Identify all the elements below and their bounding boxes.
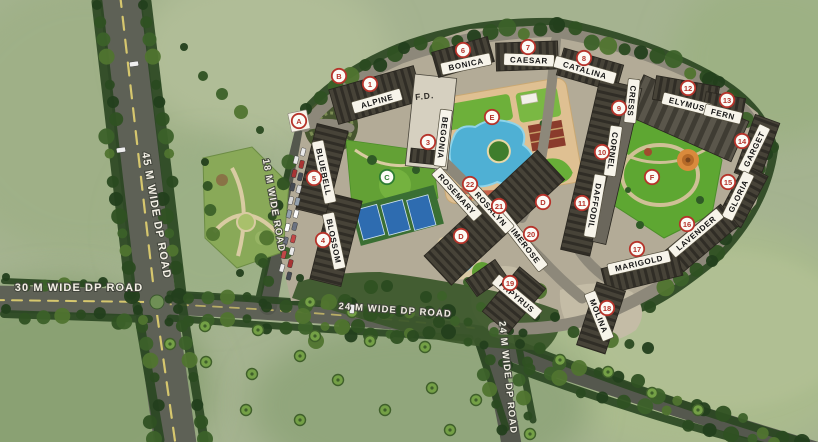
tree [143, 415, 157, 429]
tree [596, 392, 608, 404]
building-number-badge[interactable]: 8 [577, 51, 591, 65]
palm-tree [427, 383, 438, 394]
building-number: 9 [617, 104, 621, 113]
tree [107, 176, 119, 188]
building-number: 15 [724, 178, 732, 187]
tree [497, 425, 508, 436]
tree [491, 400, 500, 409]
tree [94, 16, 106, 28]
tree [19, 313, 31, 325]
tree [138, 0, 148, 10]
tree [757, 427, 769, 439]
palm-tree [200, 321, 211, 332]
tree [738, 413, 748, 423]
building-number-badge[interactable]: 22 [463, 177, 477, 191]
tree [263, 276, 274, 287]
tree [398, 42, 410, 54]
tree [153, 96, 165, 108]
tree [321, 322, 330, 331]
tree [204, 204, 216, 216]
tree [642, 342, 654, 354]
tree [682, 420, 694, 432]
tree [524, 412, 533, 421]
amenity-marker-e-5[interactable]: E [485, 110, 499, 124]
building-number: 10 [598, 148, 606, 157]
palm-tree [241, 405, 252, 416]
tree [220, 290, 235, 305]
tree [631, 374, 645, 388]
tree [54, 308, 70, 324]
tree [524, 363, 536, 375]
tree [314, 91, 328, 105]
tree [220, 312, 235, 327]
tree [202, 291, 215, 304]
tree [684, 67, 696, 79]
tree [206, 227, 220, 241]
tree [2, 273, 10, 281]
tree [180, 43, 188, 51]
tree [550, 312, 560, 322]
tree [619, 43, 631, 55]
building-number-badge[interactable]: 19 [503, 276, 517, 290]
palm-tree [365, 336, 376, 347]
tree [464, 318, 473, 327]
tree [637, 398, 653, 414]
building-number: 6 [461, 46, 465, 55]
tree [519, 329, 528, 338]
palm-tree [295, 415, 306, 426]
tree [182, 352, 198, 368]
tree [143, 32, 157, 46]
building-number: 11 [578, 199, 586, 208]
tree [571, 360, 587, 376]
building-number-badge[interactable]: 3 [421, 135, 435, 149]
amenity-marker-d-4[interactable]: D [536, 195, 550, 209]
amenity-marker-f-6[interactable]: F [645, 170, 659, 184]
tree [109, 112, 123, 126]
tree [533, 23, 547, 37]
amenity-marker-d-3[interactable]: D [454, 229, 468, 243]
palm-tree [693, 405, 704, 416]
tree [715, 406, 731, 422]
tree [105, 149, 115, 159]
building-number-badge[interactable]: 1 [363, 77, 377, 91]
building-number: 19 [506, 279, 514, 288]
building-number: 18 [603, 304, 611, 313]
tree [672, 396, 682, 406]
tree [158, 128, 174, 144]
palm-tree [310, 331, 321, 342]
tree [568, 21, 582, 35]
palm-tree [647, 388, 658, 399]
car-on-road [129, 61, 139, 67]
amenity-letter: E [489, 113, 494, 122]
palm-tree [420, 342, 431, 353]
tree [723, 426, 739, 442]
tree [576, 388, 586, 398]
tree [321, 294, 337, 310]
building-number-badge[interactable]: 11 [575, 196, 589, 210]
building-number-badge[interactable]: 6 [456, 43, 470, 57]
tree [37, 310, 51, 324]
tree [277, 177, 290, 190]
masterplan-svg: 45 M WIDE DP ROAD30 M WIDE DP ROAD18 M W… [0, 0, 818, 442]
tree [662, 406, 672, 416]
tree [99, 49, 115, 65]
amenity-letter: D [540, 198, 546, 207]
amenity-marker-c-2[interactable]: C [380, 170, 394, 184]
palm-tree [253, 325, 264, 336]
tree [236, 269, 244, 277]
amenity-letter: B [336, 72, 342, 81]
building-number-badge[interactable]: 9 [612, 101, 626, 115]
tree [234, 105, 248, 119]
tree [624, 339, 634, 349]
tree [150, 372, 160, 382]
tree [515, 339, 525, 349]
tree [96, 32, 110, 46]
palm-tree [471, 395, 482, 406]
tree [703, 423, 717, 437]
amenity-letter: C [384, 173, 390, 182]
tree [516, 391, 531, 406]
tree [243, 292, 252, 301]
amenity-letter: F [650, 173, 655, 182]
building-name: CAESAR [510, 55, 548, 65]
palm-tree [201, 357, 212, 368]
tree [296, 274, 304, 282]
road-label-road-30m: 30 M WIDE DP ROAD [15, 282, 144, 294]
tree [280, 300, 293, 313]
tree [216, 88, 228, 100]
tree [142, 353, 158, 369]
tree [259, 299, 268, 308]
tree [441, 324, 456, 339]
tree [534, 342, 546, 354]
building-number: 13 [723, 96, 731, 105]
tree [145, 49, 161, 65]
tree [464, 338, 473, 347]
building-number: 16 [683, 220, 691, 229]
building-number: 14 [738, 137, 747, 146]
tree [243, 314, 252, 323]
tree [198, 71, 208, 81]
tree [109, 192, 123, 206]
building-number: 17 [633, 245, 641, 254]
palm-tree [525, 429, 536, 440]
tree [94, 307, 106, 319]
tree [649, 48, 665, 64]
building-number-badge[interactable]: 15 [721, 175, 735, 189]
tree [407, 330, 419, 342]
tree [111, 208, 127, 224]
tree [153, 399, 165, 411]
palm-tree [305, 297, 316, 308]
tree [151, 80, 161, 90]
tree [568, 326, 580, 338]
building-number-badge[interactable]: 16 [680, 217, 694, 231]
tree [1, 304, 11, 314]
tree [188, 372, 198, 382]
building-number-badge[interactable]: 13 [720, 93, 734, 107]
tree [107, 96, 119, 108]
tree [364, 280, 378, 294]
fire-deck-label: F.D. [415, 90, 435, 102]
tree [599, 37, 617, 55]
tree [105, 80, 115, 90]
palm-tree [380, 405, 391, 416]
tree [116, 313, 132, 329]
building-number-badge[interactable]: 21 [492, 199, 506, 213]
tree [518, 28, 530, 40]
building-number: 3 [426, 138, 430, 147]
tree [120, 245, 132, 257]
palm-tree [165, 339, 176, 350]
tree [191, 399, 203, 411]
tree [584, 35, 600, 51]
building-number: 1 [368, 80, 372, 89]
tree [164, 149, 174, 159]
tree [295, 308, 311, 324]
tree [133, 305, 143, 315]
tree [381, 280, 393, 292]
tree [183, 293, 194, 304]
building-number: 22 [466, 180, 474, 189]
tree [179, 336, 193, 350]
building-number: 20 [527, 230, 535, 239]
tree [373, 58, 387, 72]
palm-tree [295, 351, 306, 362]
building-number-badge[interactable]: 20 [524, 227, 538, 241]
building-number: 12 [684, 84, 692, 93]
tree [194, 415, 208, 429]
tree [634, 46, 648, 60]
building-number-badge[interactable]: 17 [630, 242, 644, 256]
amenity-marker-a-0[interactable]: A [288, 110, 311, 133]
masterplan-image[interactable]: 45 M WIDE DP ROAD30 M WIDE DP ROAD18 M W… [0, 0, 818, 442]
tree [183, 316, 194, 327]
roundabout-island [150, 295, 164, 309]
tree [259, 230, 274, 245]
tree [706, 255, 718, 267]
tree [553, 19, 565, 31]
tree [437, 291, 447, 301]
tree [477, 368, 490, 381]
tree [617, 395, 631, 409]
building-number-badge[interactable]: 7 [521, 40, 535, 54]
building-number-badge[interactable]: 5 [307, 171, 321, 185]
palm-tree [603, 367, 614, 378]
building-number: 21 [495, 202, 503, 211]
tree [156, 112, 170, 126]
tree [280, 322, 293, 335]
tree [359, 59, 371, 71]
tree [423, 326, 436, 339]
tree [138, 315, 148, 325]
tree [351, 319, 365, 333]
tree [92, 0, 102, 10]
amenity-letter: D [458, 232, 464, 241]
building-number-badge[interactable]: 12 [681, 81, 695, 95]
tree [139, 337, 153, 351]
tree [173, 304, 183, 314]
tree [551, 370, 567, 386]
tree [166, 176, 178, 188]
amenity-marker-b-1[interactable]: B [332, 69, 346, 83]
amenity-letter: A [296, 117, 302, 126]
building-number: 5 [312, 174, 316, 183]
building-name-plate: CAESAR [504, 53, 555, 67]
palm-tree [445, 425, 456, 436]
tree [498, 19, 516, 37]
tree [165, 295, 174, 304]
car-on-road [116, 147, 126, 153]
tree [140, 16, 152, 28]
tree [258, 258, 268, 268]
tree [485, 354, 496, 365]
building-number: 8 [582, 54, 586, 63]
building-number-badge[interactable]: 14 [735, 134, 749, 148]
palm-tree [247, 369, 258, 380]
tree [203, 181, 213, 191]
tree [665, 50, 683, 68]
tree [98, 128, 114, 144]
tree [644, 301, 656, 313]
tree [76, 310, 86, 320]
tree [117, 228, 127, 238]
tree [201, 158, 209, 166]
tree [256, 126, 264, 134]
tree [165, 318, 174, 327]
building-number-badge[interactable]: 4 [316, 233, 330, 247]
tree [482, 382, 497, 397]
tree [414, 37, 428, 51]
tree [334, 319, 350, 335]
palm-tree [555, 355, 566, 366]
building-number-badge[interactable]: 18 [600, 301, 614, 315]
tree [122, 261, 136, 275]
building-number-badge[interactable]: 10 [595, 145, 609, 159]
tree [480, 341, 489, 350]
palm-tree [333, 375, 344, 386]
tree [420, 291, 432, 303]
tree [390, 330, 404, 344]
building-number: 7 [526, 43, 530, 52]
